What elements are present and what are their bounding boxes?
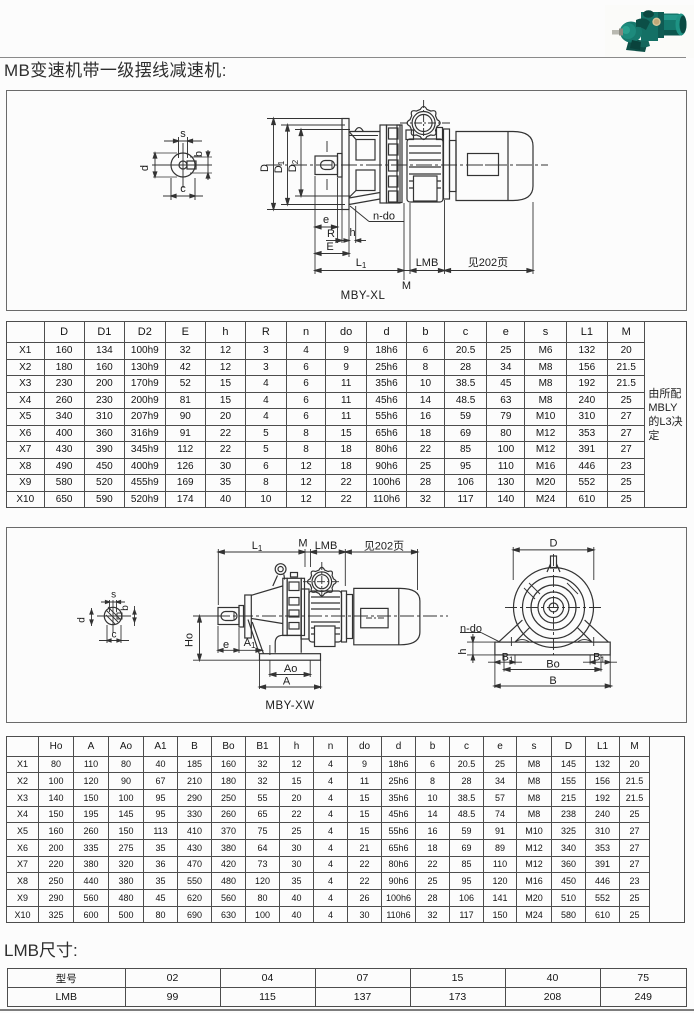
svg-text:Bo: Bo — [546, 659, 559, 671]
svg-text:e: e — [323, 214, 329, 226]
svg-text:E: E — [326, 241, 333, 253]
svg-text:M: M — [298, 538, 307, 550]
svg-text:s: s — [180, 128, 186, 140]
svg-text:LMB: LMB — [416, 257, 439, 269]
svg-text:MBY-XW: MBY-XW — [265, 700, 314, 712]
svg-text:MBY-XL: MBY-XL — [341, 290, 386, 302]
svg-text:b: b — [193, 151, 205, 157]
svg-text:b: b — [120, 605, 131, 611]
svg-text:A: A — [283, 676, 291, 688]
svg-text:见202页: 见202页 — [364, 541, 404, 553]
svg-text:见202页: 见202页 — [468, 257, 508, 269]
svg-text:L1: L1 — [252, 540, 263, 553]
svg-text:n-do: n-do — [460, 623, 482, 635]
svg-text:L1: L1 — [356, 257, 367, 270]
svg-text:B1: B1 — [502, 652, 514, 665]
svg-text:c: c — [112, 630, 117, 641]
svg-text:e: e — [223, 639, 229, 651]
svg-text:R: R — [327, 228, 335, 240]
svg-text:B1: B1 — [593, 652, 605, 665]
svg-text:c: c — [180, 183, 186, 195]
svg-text:D: D — [259, 164, 271, 172]
svg-text:h: h — [349, 227, 355, 239]
svg-text:h: h — [457, 648, 469, 654]
svg-text:s: s — [111, 590, 116, 601]
svg-text:B: B — [549, 675, 556, 687]
svg-text:d: d — [77, 617, 88, 623]
svg-text:D: D — [550, 538, 558, 550]
svg-text:n-do: n-do — [373, 211, 395, 223]
svg-text:LMB: LMB — [315, 540, 338, 552]
svg-text:d: d — [139, 165, 151, 171]
svg-text:D2: D2 — [287, 159, 300, 172]
svg-text:M: M — [402, 280, 411, 292]
svg-text:D1: D1 — [273, 160, 286, 173]
svg-text:Ao: Ao — [284, 663, 297, 675]
svg-text:Ho: Ho — [184, 633, 196, 647]
